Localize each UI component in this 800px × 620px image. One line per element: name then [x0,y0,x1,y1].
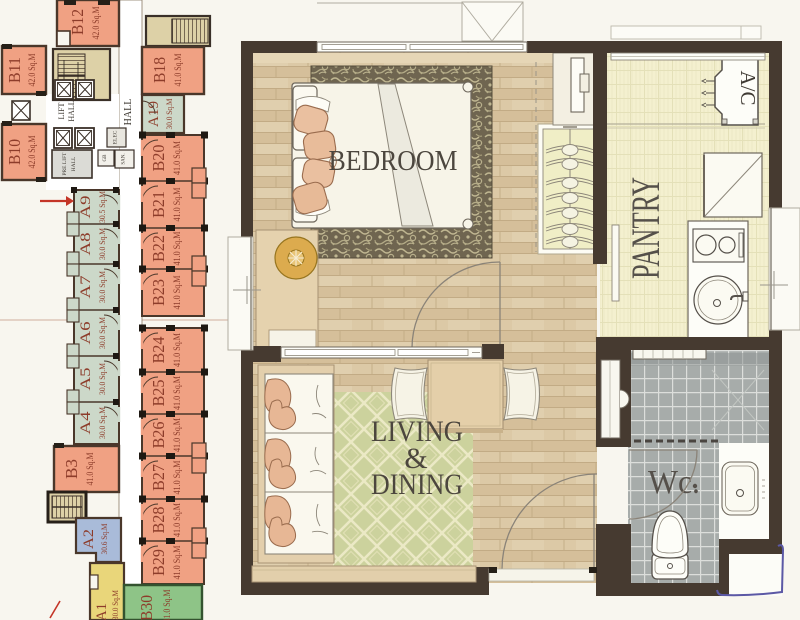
svg-text:Wc.: Wc. [648,464,700,501]
svg-text:DINING: DINING [371,468,463,501]
svg-text:B26: B26 [149,422,168,449]
svg-text:B24: B24 [149,336,168,363]
svg-text:ELEC: ELEC [113,130,119,144]
svg-text:B21: B21 [149,191,168,218]
svg-text:A/C: A/C [736,70,760,105]
svg-text:41.0 Sq.M: 41.0 Sq.M [172,188,182,222]
svg-text:41.0 Sq.M: 41.0 Sq.M [172,232,182,266]
svg-text:41.0 Sq.M: 41.0 Sq.M [172,418,182,452]
svg-text:B10: B10 [5,139,24,165]
svg-text:41.0 Sq.M: 41.0 Sq.M [173,54,183,87]
svg-text:42.0 Sq.M: 42.0 Sq.M [91,7,101,40]
svg-text:A19: A19 [146,101,162,127]
svg-text:LIFT: LIFT [57,102,66,119]
svg-text:HALL: HALL [123,99,134,126]
svg-text:PRE LIFT: PRE LIFT [62,152,68,176]
svg-text:41.0 Sq.M: 41.0 Sq.M [172,461,182,495]
svg-text:30.0 Sq.M: 30.0 Sq.M [97,271,107,303]
svg-text:B30: B30 [137,595,156,620]
svg-text:41.0 Sq.M: 41.0 Sq.M [172,141,182,175]
svg-text:30.0 Sq.M: 30.0 Sq.M [97,317,107,349]
svg-text:42.0 Sq.M: 42.0 Sq.M [27,54,37,87]
svg-text:42.0 Sq.M: 42.0 Sq.M [27,136,37,169]
svg-text:30.0 Sq.M: 30.0 Sq.M [97,228,107,260]
svg-text:PANTRY: PANTRY [623,177,668,279]
svg-text:A1: A1 [94,603,110,620]
svg-text:B11: B11 [5,57,24,83]
svg-text:HALL: HALL [67,100,76,121]
svg-text:A6: A6 [78,321,94,345]
svg-text:30.0 Sq.M: 30.0 Sq.M [110,590,120,620]
svg-text:30.6 Sq.M: 30.6 Sq.M [99,523,109,554]
svg-text:B3: B3 [62,459,81,479]
svg-text:41.0 Sq.M: 41.0 Sq.M [172,376,182,410]
svg-text:B20: B20 [149,145,168,172]
svg-text:A5: A5 [78,368,94,391]
svg-text:B25: B25 [149,380,168,407]
svg-text:B29: B29 [149,549,168,576]
svg-text:B23: B23 [149,279,168,306]
svg-text:B12: B12 [68,9,87,35]
svg-text:A8: A8 [78,233,94,256]
svg-text:GB: GB [103,154,108,162]
svg-text:B18: B18 [150,57,169,83]
svg-text:30.0 Sq.M: 30.0 Sq.M [97,363,107,395]
svg-text:A4: A4 [78,411,94,435]
svg-text:SAN.: SAN. [122,153,127,164]
svg-text:41.0 Sq.M: 41.0 Sq.M [85,453,95,486]
svg-text:30.0 Sq.M: 30.0 Sq.M [164,98,174,129]
svg-text:41.0 Sq.M: 41.0 Sq.M [172,333,182,367]
svg-text:BEDROOM: BEDROOM [329,146,458,177]
svg-text:HALL: HALL [71,156,77,171]
svg-text:41.0 Sq.M: 41.0 Sq.M [172,546,182,580]
svg-text:B27: B27 [149,464,168,491]
svg-text:A2: A2 [81,529,97,549]
svg-text:30.0 Sq.M: 30.0 Sq.M [97,407,107,439]
svg-text:41.0 Sq.M: 41.0 Sq.M [172,503,182,537]
svg-text:B22: B22 [149,235,168,262]
svg-text:A9: A9 [78,196,94,219]
svg-text:41.0 Sq.M: 41.0 Sq.M [162,590,172,620]
svg-text:41.0 Sq.M: 41.0 Sq.M [172,276,182,310]
svg-text:B28: B28 [149,507,168,534]
svg-text:A7: A7 [78,275,94,299]
